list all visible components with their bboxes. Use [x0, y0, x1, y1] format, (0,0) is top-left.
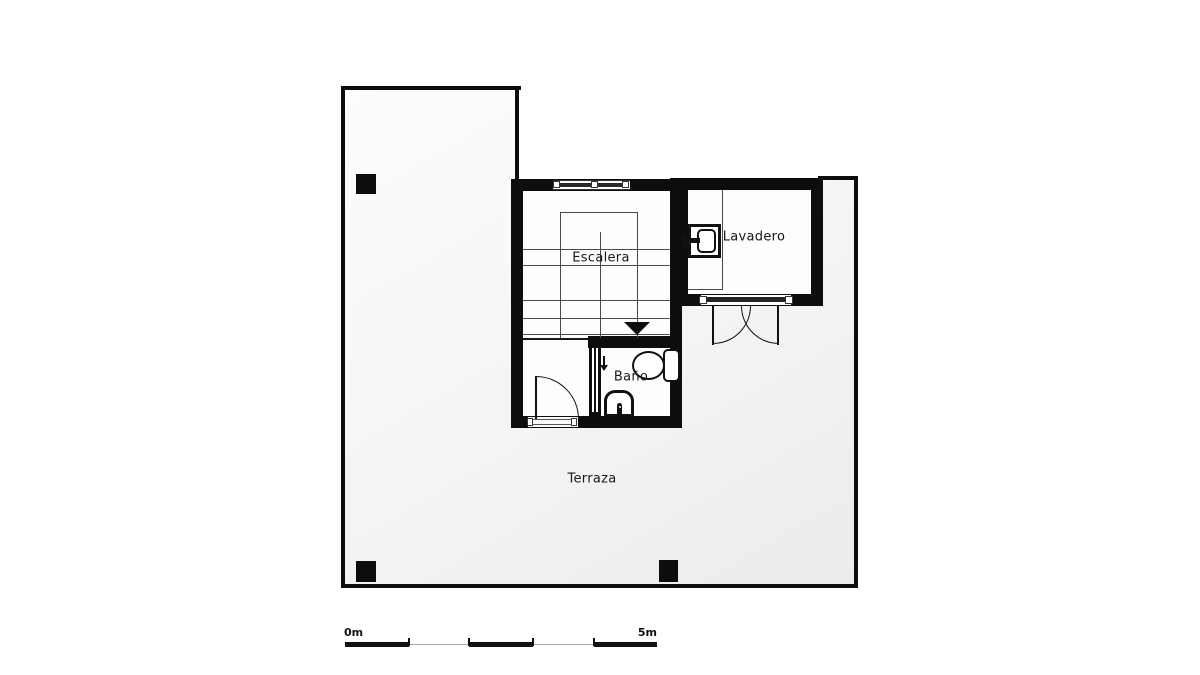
exterior-wall-top: [341, 86, 521, 90]
scale-segment: [345, 642, 409, 647]
room-label-escalera: Escalera: [572, 251, 629, 266]
entry-arrow-head: [600, 365, 608, 371]
toilet-tank: [663, 349, 680, 382]
floor-plan: Escalera Lavadero Baño Terraza 0m 5m: [0, 0, 1200, 675]
exterior-wall-right: [854, 176, 858, 588]
column-marker: [356, 561, 376, 582]
scale-end-label: 5m: [638, 626, 657, 639]
wall-lavadero-right: [811, 178, 823, 306]
stair-direction-arrow-icon: [624, 322, 650, 335]
scale-tick: [593, 638, 595, 646]
lavadero-door-cap: [785, 296, 793, 304]
column-marker: [356, 174, 376, 194]
stairwell-line-left: [560, 212, 561, 338]
lavadero-door-cap: [699, 296, 707, 304]
pocket-door-leaf: [594, 348, 596, 412]
washing-machine-handle: [686, 238, 700, 243]
vestibule-door-track: [529, 419, 577, 420]
washer-nook-line-h: [688, 289, 722, 290]
stair-tread: [523, 318, 670, 319]
exterior-wall-upper-right: [515, 86, 519, 182]
wall-stair-left: [511, 179, 523, 428]
vestibule-door-cap: [527, 418, 533, 426]
stair-center-line: [600, 232, 601, 338]
room-label-lavadero: Lavadero: [723, 230, 786, 245]
room-label-bano: Baño: [614, 370, 648, 385]
exterior-wall-top-right: [818, 176, 858, 180]
exterior-wall-bottom: [341, 584, 858, 588]
column-marker: [659, 560, 678, 582]
scale-tick: [468, 638, 470, 646]
vestibule-door-cap: [571, 418, 577, 426]
scale-tick: [408, 638, 410, 646]
room-label-terraza: Terraza: [567, 472, 616, 487]
window-post-right: [622, 181, 629, 188]
wall-lavadero-top: [670, 178, 823, 190]
stairwell-line-top: [560, 212, 638, 213]
vestibule-top-line: [523, 338, 589, 340]
scale-segment: [469, 642, 533, 647]
stairwell-line-right: [637, 212, 638, 338]
scale-segment: [594, 642, 657, 647]
lavadero-door-band: [705, 297, 787, 302]
scale-start-label: 0m: [344, 626, 363, 639]
sink-faucet: [617, 403, 622, 416]
exterior-wall-left: [341, 86, 345, 588]
sink-faucet-dot: [619, 406, 621, 408]
window-post-left: [553, 181, 560, 188]
vestibule-door-track: [529, 424, 577, 425]
stair-tread: [523, 300, 670, 301]
scale-tick: [532, 638, 534, 646]
wall-bano-top: [588, 336, 682, 348]
window-post-mid: [591, 181, 598, 188]
